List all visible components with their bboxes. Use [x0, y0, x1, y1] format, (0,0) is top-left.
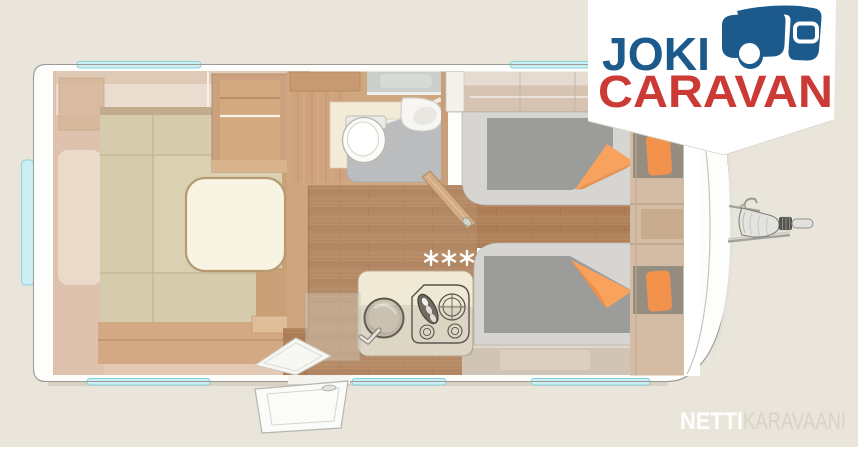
- svg-text:CARAVAN: CARAVAN: [598, 66, 833, 117]
- svg-text:NETTIKARAVAANI: NETTIKARAVAANI: [680, 408, 846, 435]
